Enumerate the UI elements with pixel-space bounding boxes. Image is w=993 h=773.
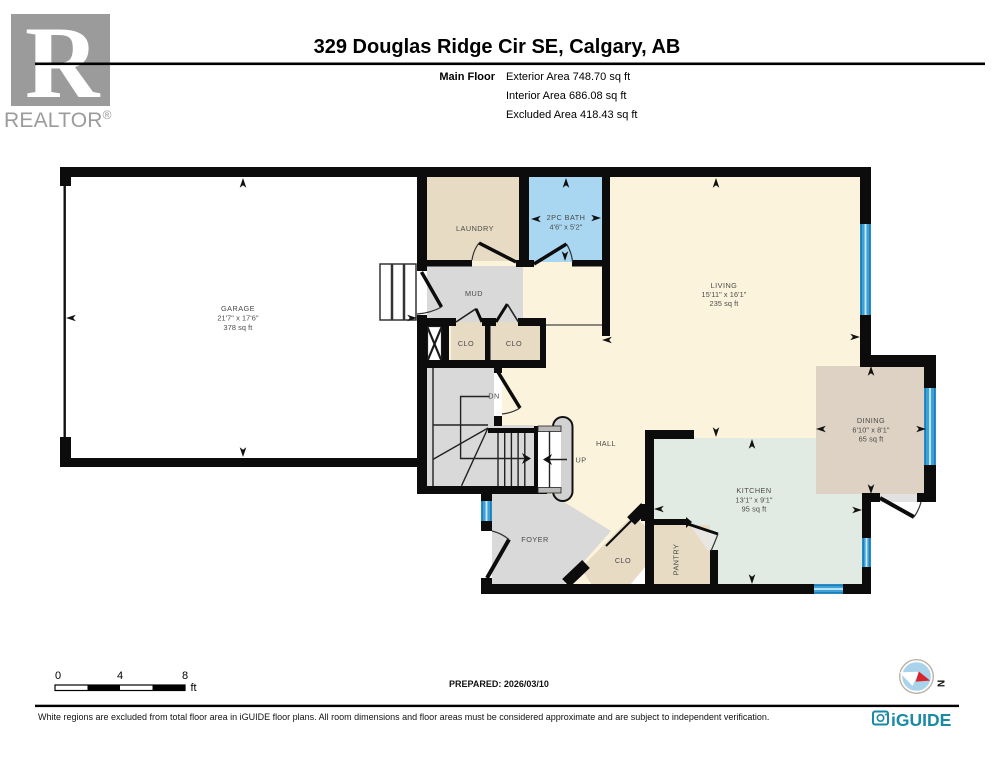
svg-text:iGUIDE: iGUIDE bbox=[891, 710, 951, 730]
svg-text:DN: DN bbox=[488, 392, 499, 401]
svg-text:Exterior Area 748.70 sq ft: Exterior Area 748.70 sq ft bbox=[506, 71, 630, 83]
svg-text:CLO: CLO bbox=[458, 339, 474, 348]
svg-text:13'1" x 9'1": 13'1" x 9'1" bbox=[735, 496, 772, 505]
svg-text:235 sq ft: 235 sq ft bbox=[710, 299, 739, 308]
svg-text:15'11" x 16'1": 15'11" x 16'1" bbox=[702, 290, 747, 299]
svg-text:4'6" x 5'2": 4'6" x 5'2" bbox=[549, 223, 582, 232]
svg-text:ft: ft bbox=[191, 682, 197, 694]
svg-text:MUD: MUD bbox=[465, 289, 483, 298]
svg-text:95 sq ft: 95 sq ft bbox=[742, 505, 767, 514]
svg-text:White regions are excluded fro: White regions are excluded from total fl… bbox=[38, 712, 769, 722]
svg-text:0: 0 bbox=[55, 670, 61, 682]
svg-text:LAUNDRY: LAUNDRY bbox=[456, 224, 494, 233]
svg-text:KITCHEN: KITCHEN bbox=[736, 486, 771, 495]
svg-text:2PC BATH: 2PC BATH bbox=[547, 213, 586, 222]
svg-text:4: 4 bbox=[117, 670, 123, 682]
svg-text:HALL: HALL bbox=[596, 439, 616, 448]
svg-text:8: 8 bbox=[182, 670, 188, 682]
svg-text:Interior Area 686.08 sq ft: Interior Area 686.08 sq ft bbox=[506, 90, 626, 102]
svg-text:GARAGE: GARAGE bbox=[221, 304, 255, 313]
svg-text:PREPARED: 2026/03/10: PREPARED: 2026/03/10 bbox=[449, 679, 549, 689]
svg-text:FOYER: FOYER bbox=[521, 535, 548, 544]
svg-text:DINING: DINING bbox=[857, 416, 885, 425]
svg-text:329 Douglas Ridge Cir SE, Calg: 329 Douglas Ridge Cir SE, Calgary, AB bbox=[314, 36, 681, 58]
svg-text:UP: UP bbox=[575, 456, 586, 465]
svg-text:REALTOR®: REALTOR® bbox=[4, 108, 112, 132]
svg-text:CLO: CLO bbox=[506, 339, 522, 348]
svg-text:6'10" x 8'1": 6'10" x 8'1" bbox=[852, 426, 889, 435]
svg-text:Excluded Area 418.43 sq ft: Excluded Area 418.43 sq ft bbox=[506, 109, 637, 121]
svg-text:CLO: CLO bbox=[615, 556, 631, 565]
svg-text:PANTRY: PANTRY bbox=[672, 544, 681, 576]
svg-text:65 sq ft: 65 sq ft bbox=[859, 435, 884, 444]
svg-text:378 sq ft: 378 sq ft bbox=[224, 323, 253, 332]
svg-text:Main Floor: Main Floor bbox=[439, 71, 495, 83]
svg-text:LIVING: LIVING bbox=[711, 281, 738, 290]
svg-text:21'7" x 17'6": 21'7" x 17'6" bbox=[217, 314, 259, 323]
svg-text:N: N bbox=[935, 680, 946, 687]
